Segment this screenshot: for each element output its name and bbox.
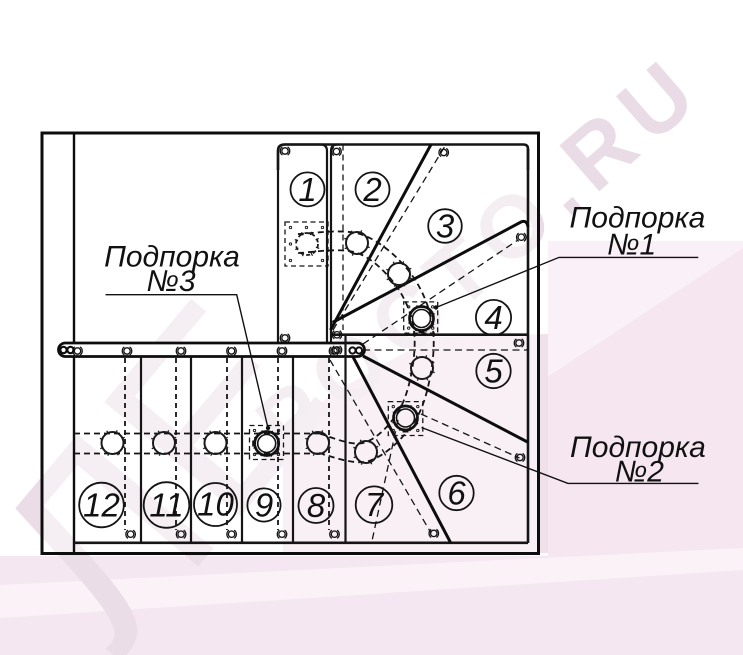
svg-text:6: 6 <box>447 475 466 512</box>
svg-text:1: 1 <box>298 171 316 208</box>
svg-text:8: 8 <box>307 487 326 524</box>
svg-text:№1: №1 <box>607 229 656 262</box>
svg-text:9: 9 <box>255 487 273 524</box>
svg-text:5: 5 <box>484 353 503 390</box>
svg-text:11: 11 <box>149 487 183 524</box>
svg-text:4: 4 <box>484 299 502 336</box>
svg-text:7: 7 <box>365 486 385 523</box>
svg-text:10: 10 <box>197 486 234 523</box>
svg-text:№3: №3 <box>146 265 195 298</box>
svg-text:3: 3 <box>436 208 455 245</box>
svg-text:2: 2 <box>362 171 381 208</box>
svg-text:12: 12 <box>83 487 120 524</box>
